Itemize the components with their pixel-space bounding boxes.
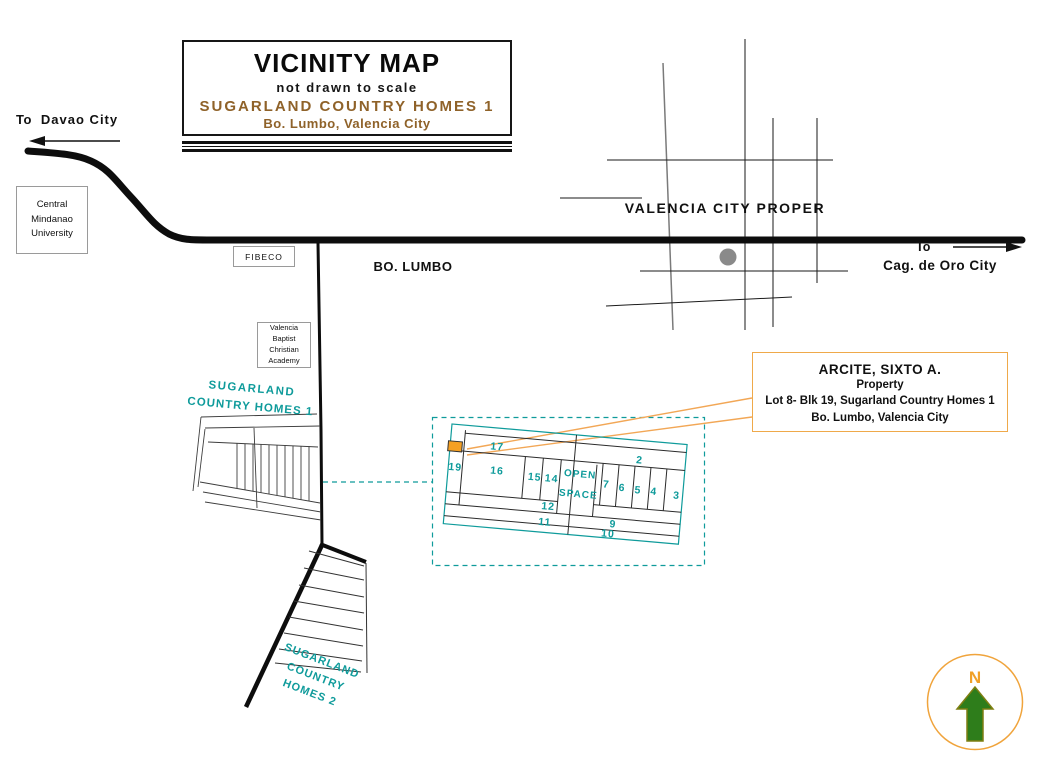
vbca-line: Academy (258, 356, 310, 367)
road-spur (320, 544, 366, 562)
open-space-label-line2: SPACE (559, 488, 599, 502)
to-cagayan-city: Cag. de Oro City (858, 258, 1022, 273)
lot-number: 16 (490, 465, 505, 478)
to-davao-prefix: To (16, 112, 32, 127)
main-highway-road (28, 151, 1022, 240)
property-type: Property (753, 377, 1007, 393)
to-davao-label: ToDavao City (16, 112, 118, 127)
vbca-line: Baptist (258, 334, 310, 345)
map-project-location: Bo. Lumbo, Valencia City (184, 116, 510, 131)
lot-number: 15 (527, 471, 542, 484)
lot-number: 2 (636, 454, 644, 467)
lot-number: 5 (634, 484, 642, 497)
lot-number: 10 (601, 527, 616, 540)
to-cagayan-prefix: To (916, 240, 930, 254)
title-underline-bars (182, 141, 512, 152)
property-owner: ARCITE, SIXTO A. (753, 362, 1007, 377)
vbca-line: Christian (258, 345, 310, 356)
homes1-block-plan: 17 19 16 15 14 2 7 6 5 4 3 12 11 9 10 OP… (441, 424, 687, 546)
grid-street-vertical-gray (663, 63, 673, 330)
valencia-city-proper-label: VALENCIA CITY PROPER (613, 200, 837, 216)
compass: N (928, 655, 1023, 750)
homes1-overview-sketch (193, 414, 321, 520)
lot-number: 17 (490, 440, 505, 453)
lot-number: 6 (618, 482, 626, 495)
property-info-box: ARCITE, SIXTO A. Property Lot 8- Blk 19,… (752, 352, 1008, 432)
cmu-line: Central (17, 198, 87, 213)
map-project-name: SUGARLAND COUNTRY HOMES 1 (184, 98, 510, 115)
cmu-line: University (17, 227, 87, 242)
map-title: VICINITY MAP (184, 49, 510, 78)
to-davao-city: Davao City (41, 112, 118, 127)
map-subtitle: not drawn to scale (184, 80, 510, 95)
bo-lumbo-label: BO. LUMBO (363, 259, 463, 274)
callout-line-bottom (467, 417, 752, 455)
map-title-box: VICINITY MAP not drawn to scale SUGARLAN… (182, 40, 512, 136)
valencia-baptist-academy-box: Valencia Baptist Christian Academy (257, 322, 311, 368)
city-street-grid (560, 39, 848, 330)
lot-number: 12 (541, 500, 556, 513)
open-space-label-line1: OPEN (563, 468, 596, 482)
lot-number: 11 (538, 516, 552, 529)
callout-line-top (467, 398, 752, 449)
city-center-dot (720, 249, 737, 266)
lot-number: 7 (602, 478, 610, 491)
property-lot-block: Lot 8- Blk 19, Sugarland Country Homes 1 (753, 393, 1007, 409)
fibeco-label: FIBECO (245, 252, 283, 262)
property-location: Bo. Lumbo, Valencia City (753, 410, 1007, 426)
vbca-line: Valencia (258, 323, 310, 334)
central-mindanao-university-box: Central Mindanao University (16, 186, 88, 254)
north-arrow-icon (957, 687, 993, 741)
block-plan-lot-lines (443, 424, 687, 544)
cmu-line: Mindanao (17, 213, 87, 228)
davao-direction-arrow (29, 136, 120, 146)
lot-number: 4 (650, 486, 658, 499)
fibeco-box: FIBECO (233, 246, 295, 267)
grid-street-diagonal (606, 297, 792, 306)
lot-number: 3 (673, 490, 681, 503)
vicinity-map-page: 17 19 16 15 14 2 7 6 5 4 3 12 11 9 10 OP… (0, 0, 1056, 768)
lot-8-highlight (448, 441, 463, 452)
arrowhead-left (29, 136, 45, 146)
lot-number: 14 (544, 472, 559, 485)
lot-number: 19 (448, 461, 463, 474)
compass-north-label: N (969, 668, 981, 687)
